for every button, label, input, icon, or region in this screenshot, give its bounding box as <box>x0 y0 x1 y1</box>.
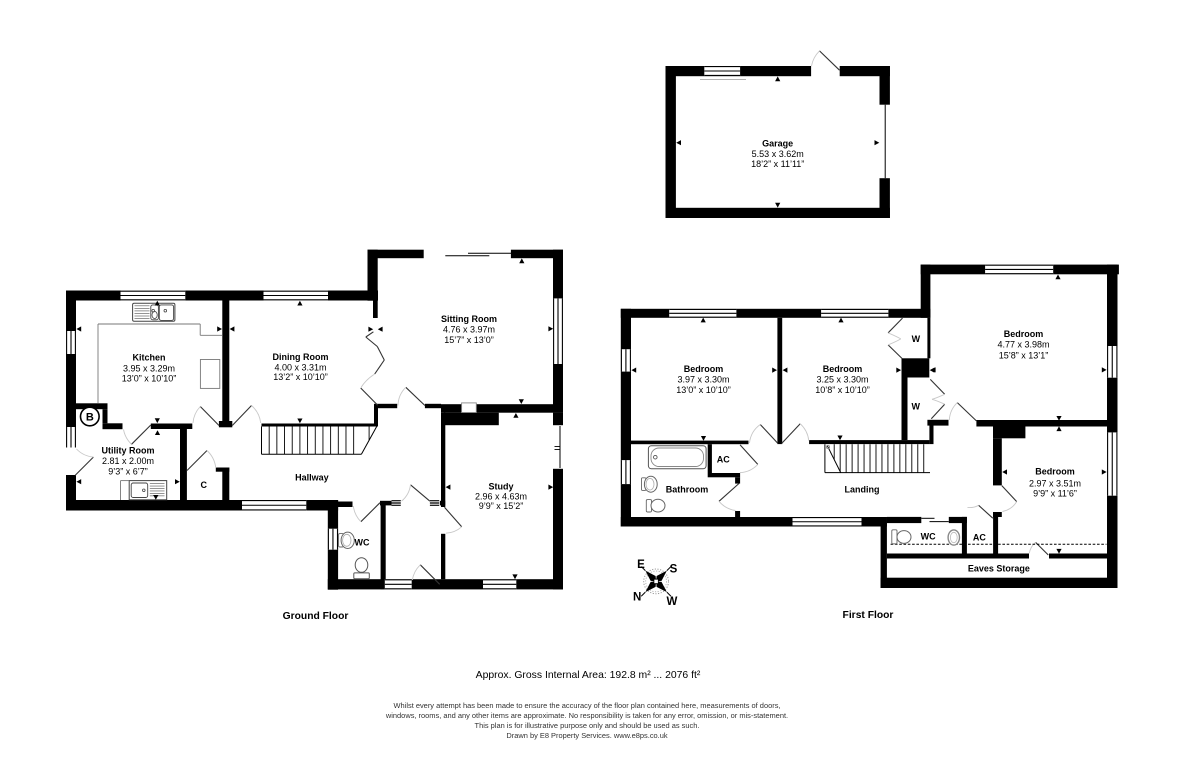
svg-text:13’2” x 10’10”: 13’2” x 10’10” <box>273 372 328 382</box>
svg-text:13’0” x 10’10”: 13’0” x 10’10” <box>676 385 731 395</box>
svg-text:15’7” x 13’0”: 15’7” x 13’0” <box>444 335 494 345</box>
svg-text:windows, rooms, and any other: windows, rooms, and any other items are … <box>385 711 788 720</box>
svg-text:Dining Room: Dining Room <box>273 352 329 362</box>
svg-text:First Floor: First Floor <box>843 610 894 621</box>
svg-text:Drawn by E8 Property Services.: Drawn by E8 Property Services. www.e8ps.… <box>506 731 667 740</box>
svg-text:Garage: Garage <box>762 139 793 149</box>
svg-text:Utility Room: Utility Room <box>102 446 155 456</box>
svg-text:2.96 x 4.63m: 2.96 x 4.63m <box>475 491 527 501</box>
svg-text:This plan is for illustrative: This plan is for illustrative purpose on… <box>475 721 700 730</box>
svg-text:W: W <box>912 334 921 344</box>
svg-text:C: C <box>201 480 208 490</box>
svg-text:Bedroom: Bedroom <box>1004 329 1044 339</box>
svg-text:WC: WC <box>355 538 370 548</box>
svg-text:Bedroom: Bedroom <box>684 364 724 374</box>
svg-text:N: N <box>633 592 641 604</box>
svg-text:2.97 x 3.51m: 2.97 x 3.51m <box>1029 478 1081 488</box>
svg-text:4.76 x 3.97m: 4.76 x 3.97m <box>443 325 495 335</box>
svg-text:AC: AC <box>973 532 986 542</box>
svg-text:18’2” x 11’11”: 18’2” x 11’11” <box>751 159 804 169</box>
svg-text:Sitting Room: Sitting Room <box>441 314 497 324</box>
svg-text:B: B <box>86 411 94 423</box>
svg-text:Ground Floor: Ground Floor <box>283 611 349 622</box>
svg-text:4.00 x 3.31m: 4.00 x 3.31m <box>274 363 326 373</box>
svg-text:Study: Study <box>488 482 513 492</box>
svg-text:9’9” x 11’6”: 9’9” x 11’6” <box>1033 489 1077 499</box>
svg-text:10’8” x 10’10”: 10’8” x 10’10” <box>815 385 870 395</box>
svg-text:W: W <box>666 596 677 608</box>
svg-text:W: W <box>912 402 921 412</box>
svg-text:Hallway: Hallway <box>295 472 329 482</box>
svg-text:S: S <box>670 564 678 576</box>
svg-text:15’8” x 13’1”: 15’8” x 13’1” <box>999 350 1049 360</box>
svg-text:9’3” x 6’7”: 9’3” x 6’7” <box>108 467 148 477</box>
svg-text:AC: AC <box>717 454 730 464</box>
svg-text:2.81 x 2.00m: 2.81 x 2.00m <box>102 456 154 466</box>
svg-text:Bedroom: Bedroom <box>1035 466 1075 476</box>
svg-text:3.97 x 3.30m: 3.97 x 3.30m <box>677 374 729 384</box>
svg-text:Bathroom: Bathroom <box>666 484 709 494</box>
svg-text:5.53 x 3.62m: 5.53 x 3.62m <box>752 149 804 159</box>
svg-text:Eaves Storage: Eaves Storage <box>968 563 1030 573</box>
svg-text:Landing: Landing <box>845 485 880 495</box>
svg-text:E: E <box>637 559 645 571</box>
svg-text:Kitchen: Kitchen <box>132 352 165 362</box>
svg-text:3.95 x 3.29m: 3.95 x 3.29m <box>123 364 175 374</box>
svg-text:3.25 x 3.30m: 3.25 x 3.30m <box>816 374 868 384</box>
svg-text:4.77 x 3.98m: 4.77 x 3.98m <box>997 339 1049 349</box>
svg-text:Whilst every attempt has been: Whilst every attempt has been made to en… <box>394 701 781 710</box>
svg-text:13’0” x 10’10”: 13’0” x 10’10” <box>122 373 177 383</box>
svg-text:Approx. Gross Internal Area: 1: Approx. Gross Internal Area: 192.8 m² ..… <box>476 670 701 681</box>
svg-text:WC: WC <box>921 531 936 541</box>
svg-text:Bedroom: Bedroom <box>823 364 863 374</box>
svg-text:9’9” x 15’2”: 9’9” x 15’2” <box>479 501 524 511</box>
